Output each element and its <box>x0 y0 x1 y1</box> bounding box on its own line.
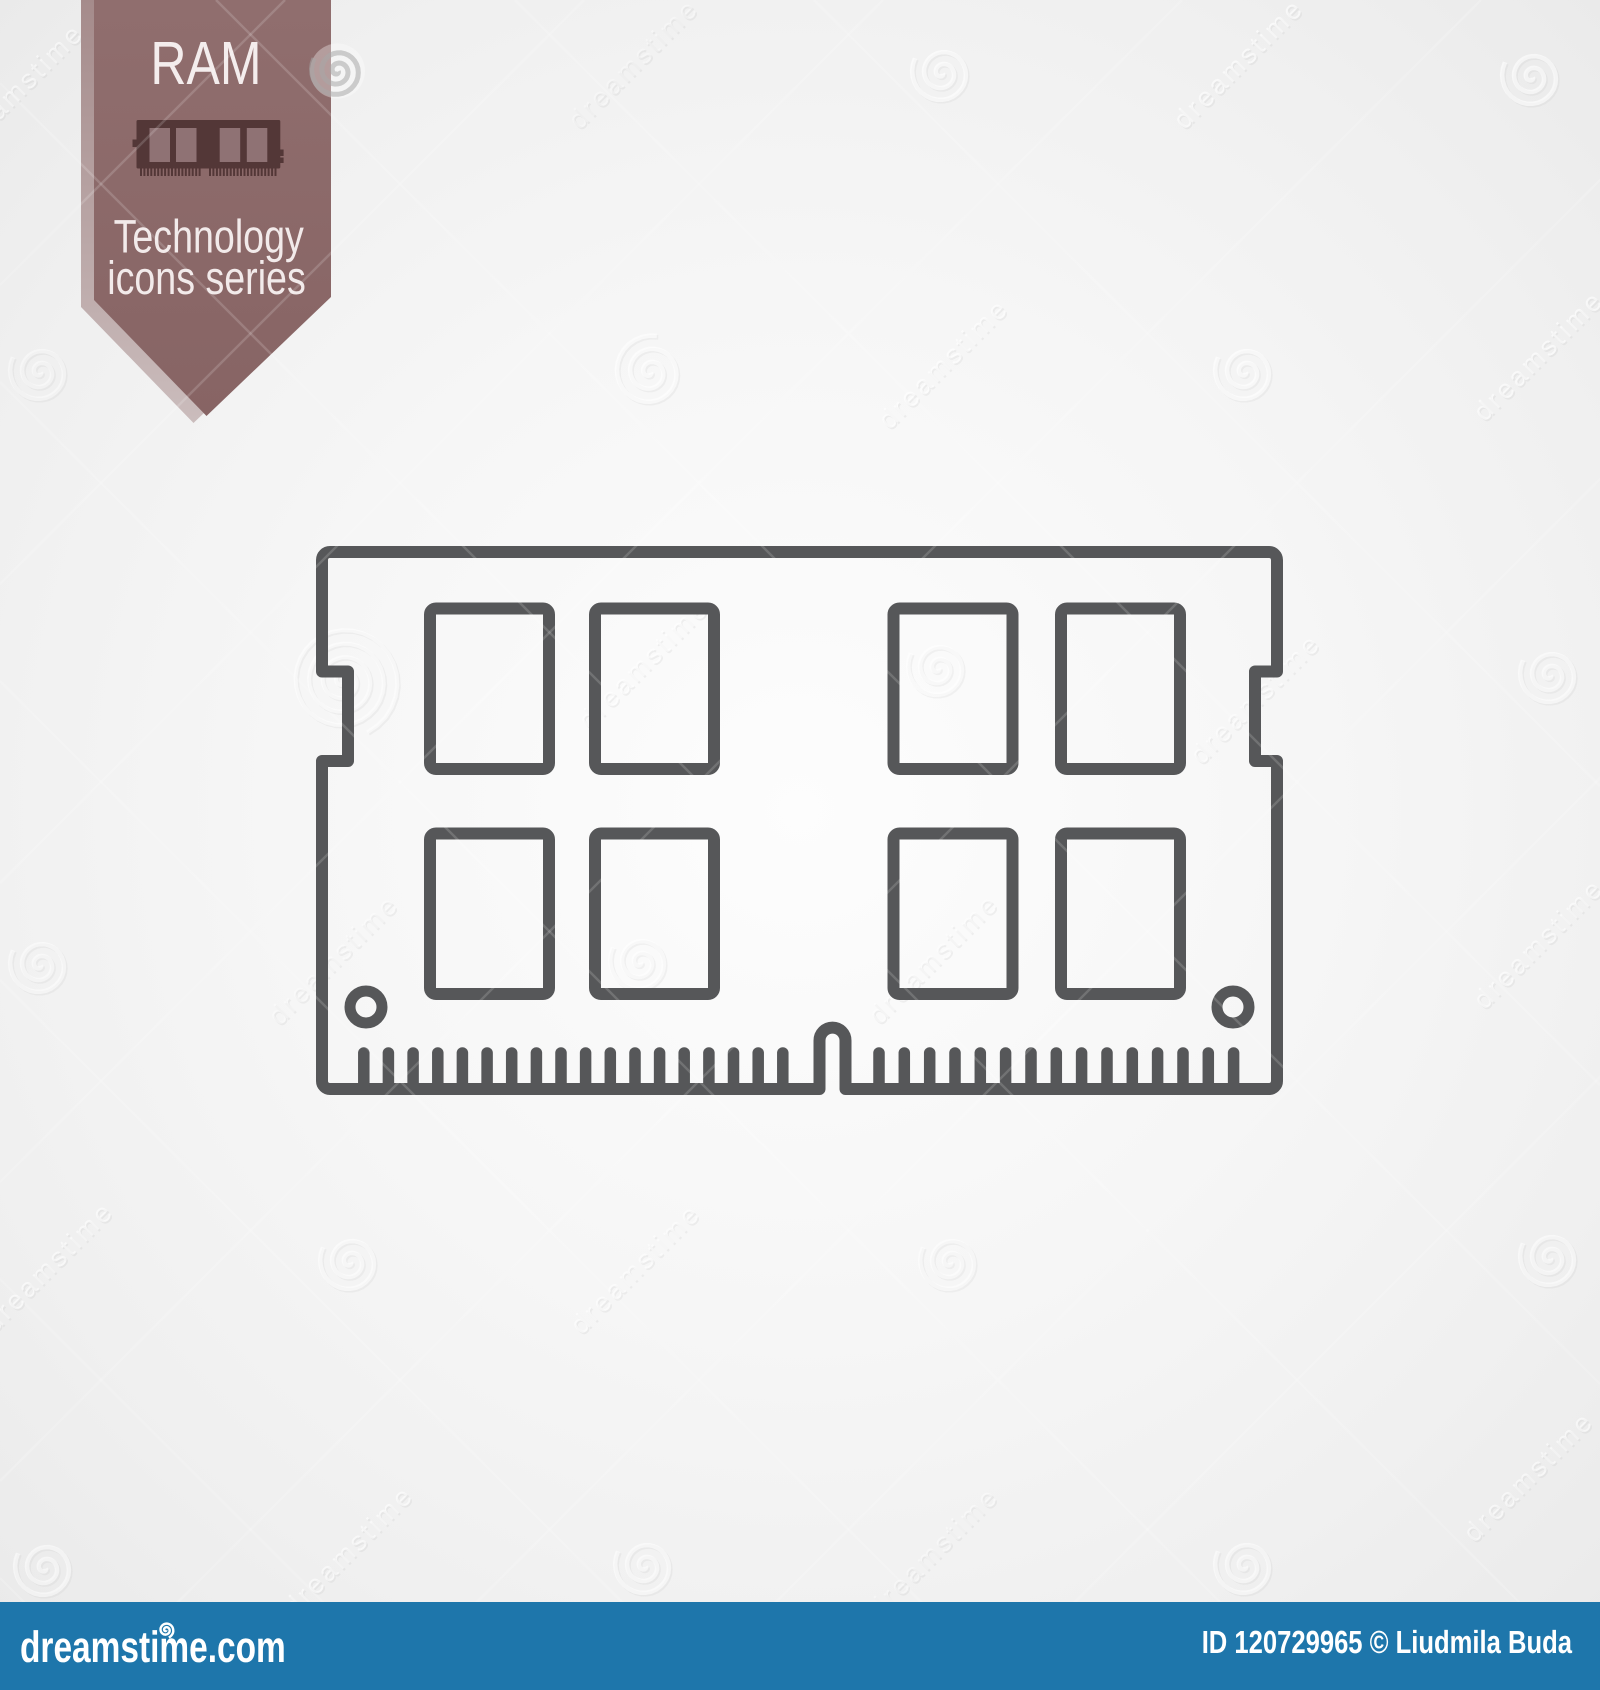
svg-text:icons series: icons series <box>107 251 306 304</box>
svg-text:dreamstime.com: dreamstime.com <box>20 1623 286 1672</box>
svg-text:ID 120729965 © Liudmila Buda: ID 120729965 © Liudmila Buda <box>1202 1624 1572 1660</box>
